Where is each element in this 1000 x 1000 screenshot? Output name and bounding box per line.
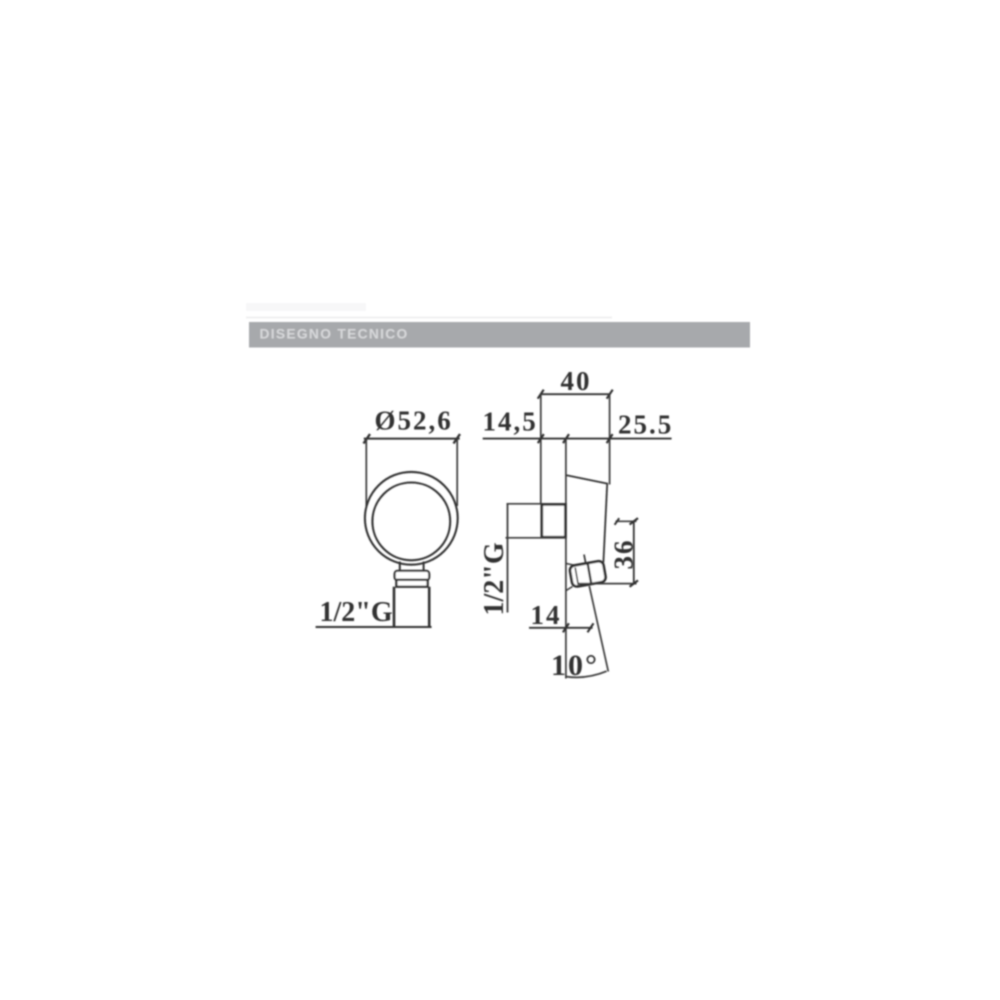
- svg-text:25.5: 25.5: [618, 410, 673, 440]
- svg-text:14,5: 14,5: [483, 407, 538, 437]
- svg-text:14: 14: [531, 600, 562, 630]
- svg-text:40: 40: [561, 366, 592, 396]
- svg-text:1/2"G: 1/2"G: [479, 542, 510, 615]
- svg-text:1/2"G: 1/2"G: [320, 597, 393, 628]
- svg-text:36: 36: [609, 539, 639, 570]
- svg-text:Ø52,6: Ø52,6: [375, 406, 453, 436]
- svg-text:DISEGNO TECNICO: DISEGNO TECNICO: [260, 327, 409, 342]
